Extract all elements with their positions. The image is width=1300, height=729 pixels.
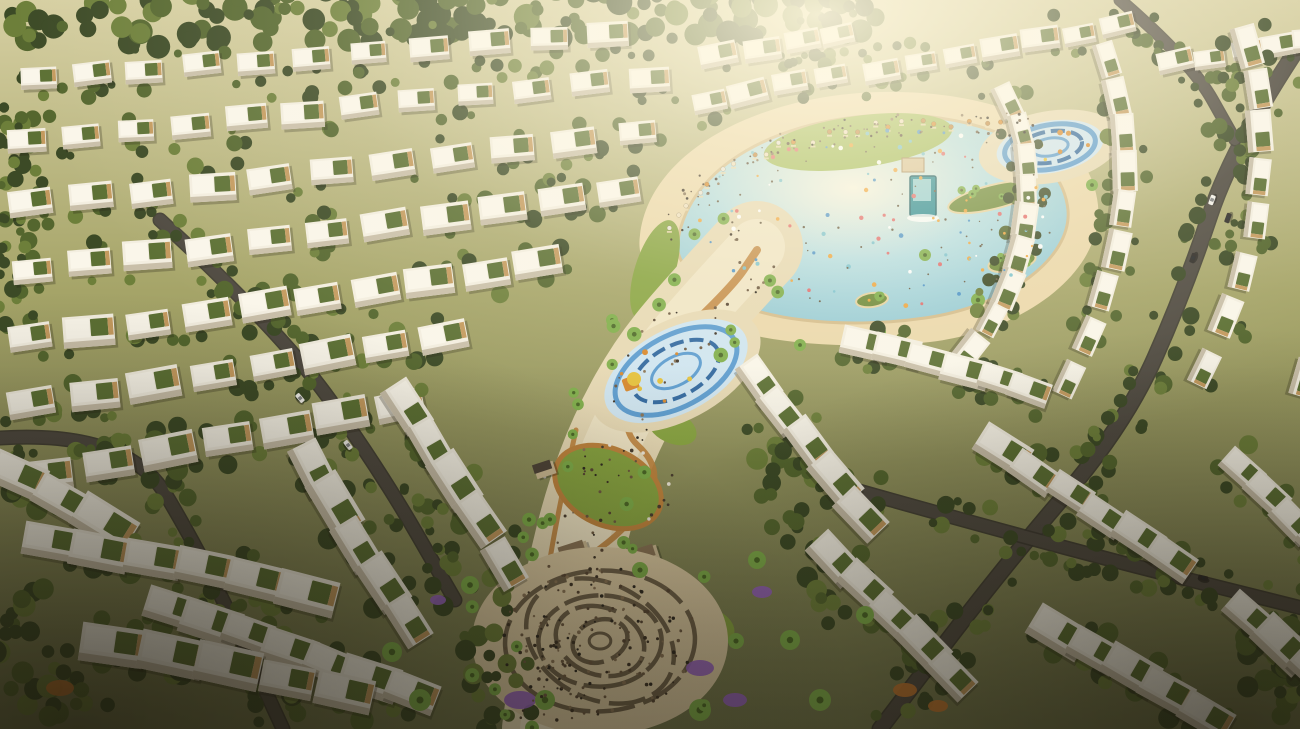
aerial-community-render [0, 0, 1300, 729]
vignette-bottom [0, 0, 1300, 729]
scene-svg [0, 0, 1300, 729]
sunlight-and-vignette [0, 0, 1300, 729]
